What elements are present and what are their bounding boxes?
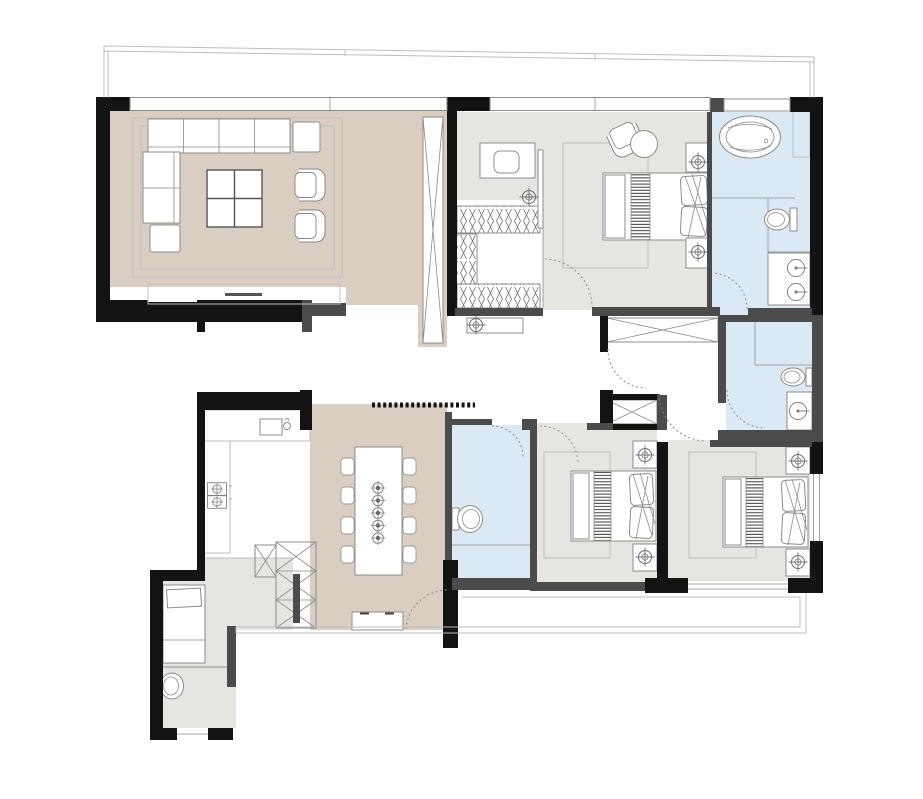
bathtub: [720, 116, 781, 158]
desk-chair: [494, 151, 519, 173]
kitchen-counter-top: [203, 410, 310, 441]
floor-plan-svg: [0, 0, 923, 799]
double-sink-vanity: [768, 253, 810, 305]
window-top-living: [130, 98, 447, 111]
window-bedroom3-right: [810, 474, 823, 541]
hall-wardrobe-x-2: [607, 400, 657, 424]
dining-chair: [403, 487, 416, 504]
hallway: [467, 316, 719, 425]
service-toilet: [161, 673, 184, 699]
window-top-bath: [724, 99, 790, 111]
hall-wardrobe-x: [607, 318, 718, 342]
toilet: [765, 208, 798, 231]
sink-vanity: [787, 392, 812, 430]
hanging-wardrobe: [455, 234, 477, 284]
dining-chair: [403, 458, 416, 475]
hanging-wardrobe: [457, 284, 540, 308]
kitchen: [203, 410, 310, 558]
ottoman: [150, 225, 180, 252]
toilet: [781, 368, 812, 386]
tv-panel: [538, 150, 543, 228]
dining-chair: [341, 458, 354, 475]
double-bed: [603, 173, 709, 240]
dining-chair: [403, 546, 416, 563]
kitchen-sink: [260, 418, 291, 435]
stove-burner: [208, 483, 227, 496]
window-top-bedroom: [490, 98, 710, 111]
window-bedroom3-bottom: [688, 581, 788, 592]
window-wc: [177, 728, 208, 740]
double-bed: [571, 471, 656, 541]
armchair: [295, 169, 325, 201]
coffee-table: [207, 170, 262, 227]
bathroom-3-floor: [452, 425, 530, 578]
side-table: [293, 122, 320, 152]
terrace-outline: [104, 46, 814, 97]
dining-chair: [341, 517, 354, 534]
tall-screen: [423, 117, 443, 343]
hanging-wardrobe: [457, 206, 540, 233]
stove-burner: [208, 496, 227, 509]
armchair: [295, 210, 325, 242]
dining-chair: [341, 546, 354, 563]
floor-plan-page: [0, 0, 923, 799]
double-bed: [723, 477, 808, 547]
console-table: [467, 318, 523, 333]
toilet: [452, 506, 483, 533]
service-bed: [163, 585, 205, 663]
dining-chair: [341, 487, 354, 504]
dining-chair: [403, 517, 416, 534]
door-swing-hall: [608, 349, 646, 388]
round-table: [631, 131, 658, 158]
